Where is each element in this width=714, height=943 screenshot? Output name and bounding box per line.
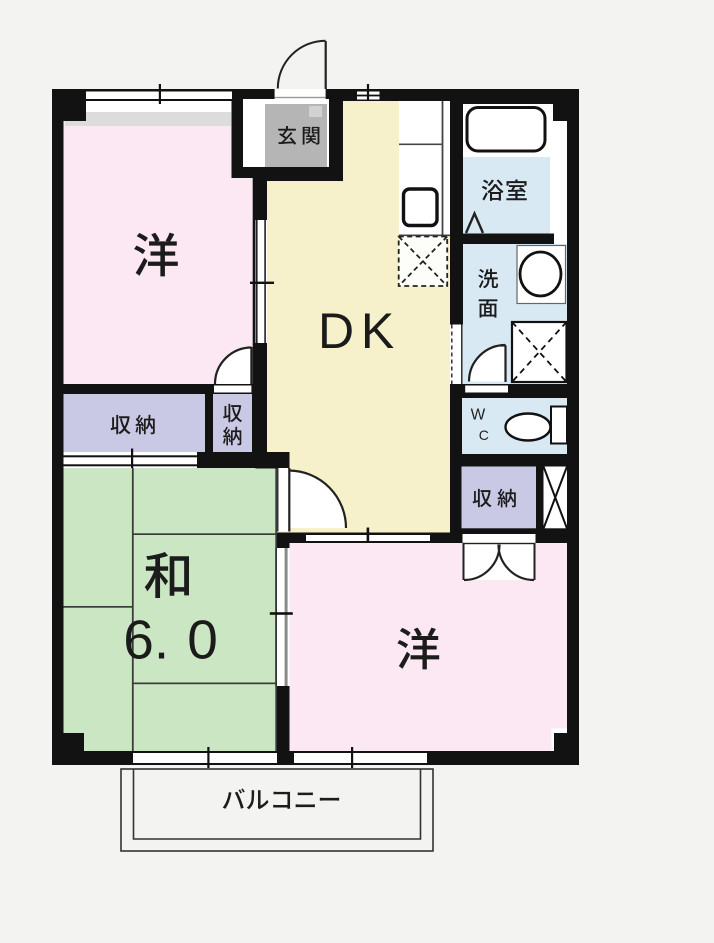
svg-text:D: D	[318, 303, 354, 359]
svg-text:K: K	[361, 303, 394, 359]
svg-text:C: C	[479, 427, 489, 443]
svg-text:0: 0	[187, 609, 218, 671]
svg-text:6: 6	[123, 609, 154, 671]
svg-text:W: W	[471, 406, 486, 423]
svg-text:.: .	[154, 609, 169, 671]
